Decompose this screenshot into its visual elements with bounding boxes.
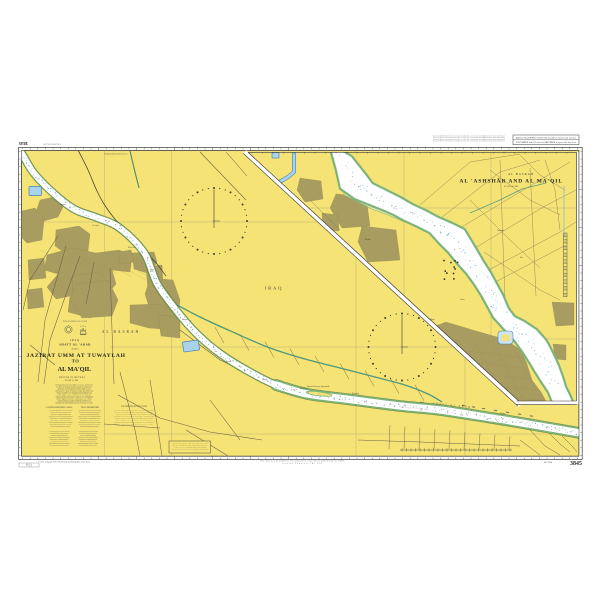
svg-text:AL BASRAH: AL BASRAH — [102, 330, 140, 334]
svg-text:SATELLITE-DERIVED POSITIONS sh: SATELLITE-DERIVED POSITIONS should be mo… — [516, 136, 576, 139]
svg-text:SCALE 1:7 500: SCALE 1:7 500 — [65, 379, 78, 382]
svg-text:Taunton Somerset TA1 2DN: Taunton Somerset TA1 2DN — [282, 462, 323, 465]
svg-text:Harbor: Harbor — [500, 413, 506, 415]
svg-text:AL BASRAH: AL BASRAH — [508, 172, 534, 176]
svg-text:DEPTHS IN METRES: DEPTHS IN METRES — [59, 377, 86, 379]
svg-text:SHATT AL 'ARAB: SHATT AL 'ARAB — [59, 343, 91, 347]
svg-text:AL 'ASHSHĀR AND AL MA'QIL: AL 'ASHSHĀR AND AL MA'QIL — [460, 178, 563, 185]
svg-text:Jazīrat Umm aţ Ţuwaylah: Jazīrat Umm aţ Ţuwaylah — [307, 385, 330, 388]
svg-text:Kut al Jal: Kut al Jal — [128, 247, 136, 249]
svg-text:Basrah: Basrah — [226, 361, 231, 363]
svg-text:Basrah: Basrah — [365, 239, 370, 241]
svg-text:3845: 3845 — [18, 141, 28, 146]
svg-text:Kut: Kut — [520, 257, 523, 259]
svg-text:Jubaylah: Jubaylah — [300, 388, 307, 390]
svg-text:Ashar: Ashar — [460, 298, 465, 301]
svg-text:THE PRINTING OF THIS CHART: THE PRINTING OF THIS CHART — [121, 405, 148, 408]
svg-text:DEPTHS IN METRES: DEPTHS IN METRES — [43, 144, 61, 146]
svg-text:Qarmat: Qarmat — [60, 204, 66, 206]
svg-text:INT 1994: INT 1994 — [544, 462, 553, 464]
svg-text:TO: TO — [72, 359, 80, 364]
svg-text:Hayy: Hayy — [150, 269, 154, 271]
svg-text:Khandaq: Khandaq — [352, 392, 359, 395]
svg-text:Tanumah: Tanumah — [497, 230, 504, 232]
svg-text:3845: 3845 — [570, 461, 582, 467]
svg-text:Dakir: Dakir — [420, 402, 425, 404]
svg-text:Muḥammadīyah settlement area: Muḥammadīyah settlement area — [104, 153, 127, 156]
svg-text:IRAQ: IRAQ — [265, 286, 283, 291]
svg-text:Al Ashar: Al Ashar — [92, 224, 99, 227]
svg-text:IRAQ: IRAQ — [70, 339, 80, 342]
svg-text:Minawi: Minawi — [182, 319, 188, 321]
svg-text:INDIAN SPRING LOW WATER: INDIAN SPRING LOW WATER — [63, 320, 88, 323]
svg-text:1 2 3 4 5: 1 2 3 4 5 — [26, 465, 32, 467]
svg-text:TIDAL INFORMATION: TIDAL INFORMATION — [81, 406, 100, 409]
svg-text:AL MA'QIL: AL MA'QIL — [58, 366, 92, 373]
svg-text:SOUTHWARD and 0.05 minutes EAS: SOUTHWARD and 0.05 minutes EASTWARD to a… — [516, 141, 577, 144]
svg-text:© Crown Copyright 1998. Publis: © Crown Copyright 1998. Published by the… — [38, 461, 90, 464]
svg-text:Maqal: Maqal — [262, 378, 267, 381]
svg-text:CAUTION SUBMARINE CABLES: CAUTION SUBMARINE CABLES — [46, 406, 72, 409]
svg-text:(BASRA): (BASRA) — [71, 347, 79, 350]
svg-text:SCALE 1:12 500: SCALE 1:12 500 — [504, 185, 518, 188]
